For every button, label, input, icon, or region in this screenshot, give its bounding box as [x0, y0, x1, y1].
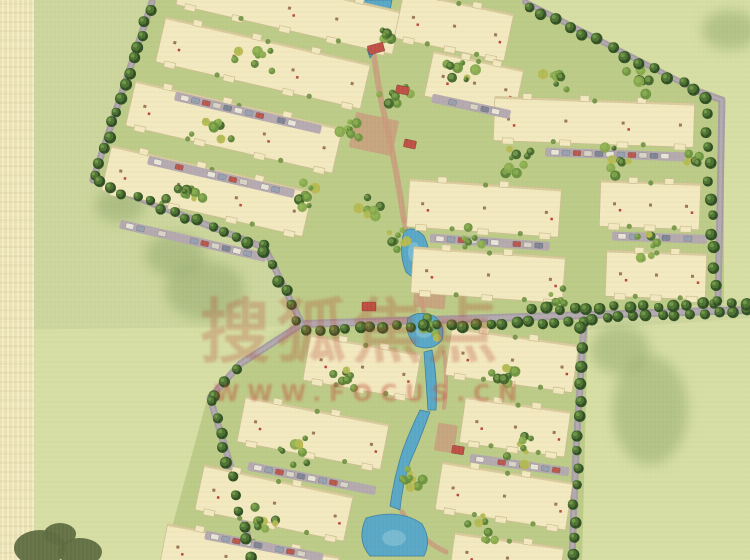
site-plan-rendering: 搜狐焦点 WWW.FOCUS.CN [0, 0, 750, 560]
scan-grain-overlay [0, 0, 750, 560]
master-plan-image: 搜狐焦点 WWW.FOCUS.CN [0, 0, 750, 560]
